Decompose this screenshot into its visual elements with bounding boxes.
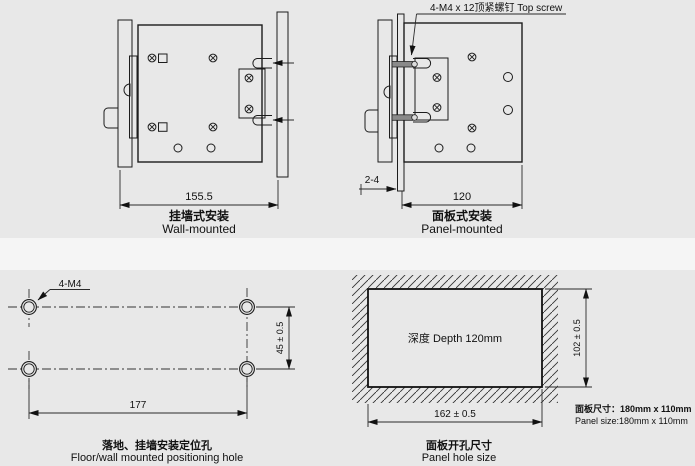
panel-cutout-diagram: 深度 Depth 120mm 102 ± 0.5 162 ± 0.5 面板尺寸：… [340,266,695,466]
dimension-vertical-value: 45 ± 0.5 [275,322,285,354]
caption-zh: 落地、挂墙安装定位孔 [102,438,212,452]
screw-hole-symbol [468,53,476,61]
screw-hole-symbol [245,105,253,113]
caption-en: Panel hole size [422,452,497,464]
round-hole [504,73,513,82]
round-hole [467,144,475,152]
panel-mounted-diagram: 4-M4 x 12顶紧螺钉 Top screw 2-4 120 面板式安装 Pa… [340,0,695,240]
m4-hole [240,362,255,377]
caption-en: Wall-mounted [162,222,236,236]
top-screw-head [412,115,418,121]
round-hole [504,106,513,115]
top-screw-callout: 4-M4 x 12顶紧螺钉 Top screw [430,2,563,14]
callout-leader-arrow [412,14,417,55]
m4-hole [240,300,255,315]
device-body [404,23,522,162]
panel-size-note-en: Panel size:180mm x 110mm [575,416,688,426]
round-hole [174,144,182,152]
dimension-vertical-value: 102 ± 0.5 [572,319,582,356]
top-screw [392,115,413,121]
screw-hole-symbol [209,54,217,62]
panel-cross-section [398,14,405,191]
wall-mounted-diagram: 155.5 挂墙式安装 Wall-mounted [0,0,340,240]
caption-zh: 挂墙式安装 [169,208,229,223]
caption-zh: 面板开孔尺寸 [426,438,492,452]
dimension-horizontal-value: 162 ± 0.5 [434,409,476,420]
top-screw-head [412,61,418,67]
screw-hole-symbol [148,54,156,62]
caption-zh: 面板式安装 [432,208,492,223]
screw-hole-symbol [245,74,253,82]
callout-leader-arrow [38,290,50,301]
square-cutout [159,123,168,132]
dimension-panel-thickness-value: 2-4 [365,175,380,186]
device-body [138,25,262,162]
dimension-horizontal-value: 177 [130,400,147,411]
right-wall-cross-section [277,12,288,177]
depth-note: 深度 Depth 120mm [408,331,502,345]
mounting-rail [390,56,398,138]
screw-hole-symbol [433,104,441,112]
hole-callout: 4-M4 [59,279,82,290]
clamp-bracket [415,58,448,120]
technical-drawing-sheet: 155.5 挂墙式安装 Wall-mounted [0,0,695,466]
panel-size-note-zh: 面板尺寸：180mm x 110mm [575,403,692,414]
side-knob [104,108,118,128]
caption-en: Floor/wall mounted positioning hole [71,452,243,464]
screw-hole-symbol [468,124,476,132]
screw-hole-symbol [209,123,217,131]
caption-en: Panel-mounted [421,222,502,236]
screw-hole-symbol [148,123,156,131]
square-cutout [159,54,168,63]
side-knob [365,110,378,132]
positioning-holes-diagram: 4-M4 45 ± 0.5 177 落地、挂墙安装定位孔 Floor/wall … [0,266,340,466]
m4-hole [22,362,37,377]
mounting-rail [130,56,138,138]
round-hole [207,144,215,152]
dimension-width-value: 155.5 [185,191,213,203]
dimension-depth-value: 120 [453,191,471,203]
top-screw [392,62,413,68]
screw-hole-symbol [433,74,441,82]
round-hole [435,144,443,152]
m4-hole [22,300,37,315]
